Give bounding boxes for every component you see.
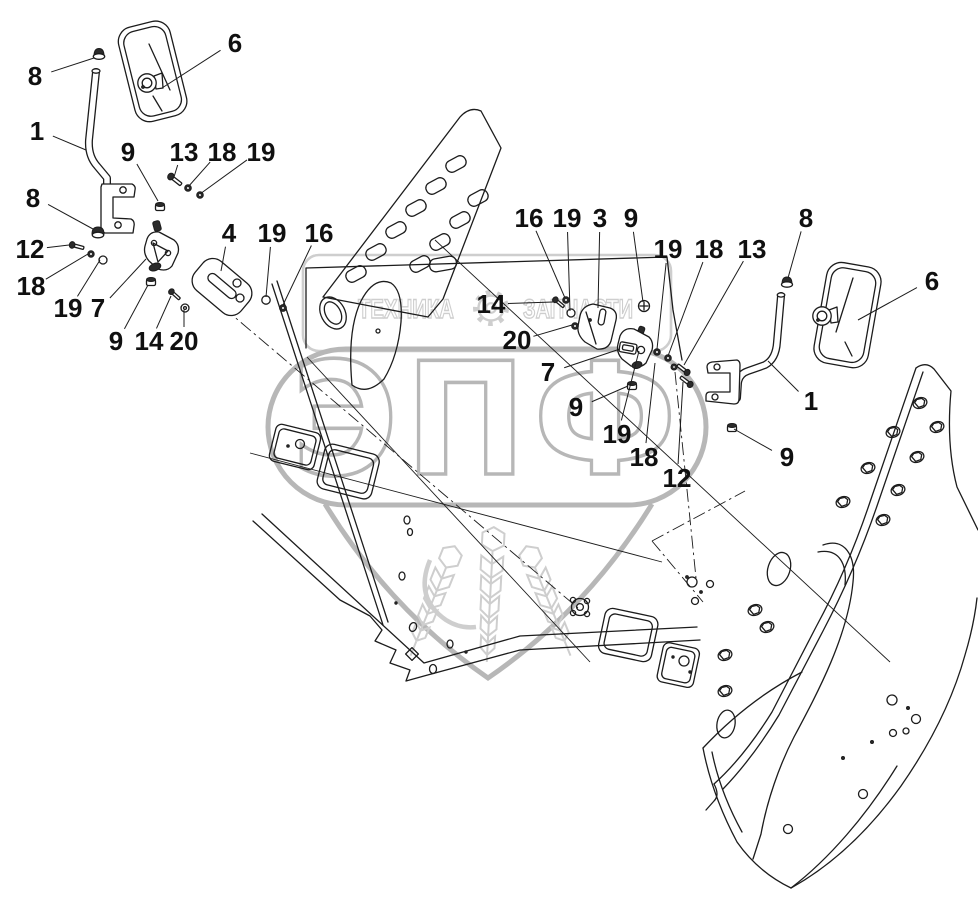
- callout-16: 16: [515, 203, 544, 233]
- callout-19: 19: [603, 419, 632, 449]
- washer-19b: [99, 256, 107, 264]
- callout-18: 18: [17, 271, 46, 301]
- callout-19: 19: [553, 203, 582, 233]
- nut-9: [156, 203, 165, 211]
- callout-1: 1: [804, 386, 818, 416]
- leader-line-1: [53, 136, 86, 150]
- washer-20: [181, 304, 189, 312]
- leader-line-8: [51, 58, 94, 72]
- clamp-bracket-7-left: [145, 220, 179, 272]
- mirror-ball-joint-right: [813, 307, 838, 325]
- callout-9: 9: [109, 326, 123, 356]
- nut-9c-right: [628, 382, 637, 390]
- washer-18b: [88, 251, 94, 257]
- slotted-vent-panel: [323, 109, 501, 317]
- leader-line-9: [734, 429, 772, 450]
- callout-4: 4: [222, 218, 237, 248]
- leader-line-19: [77, 260, 100, 296]
- washer-16-right: [563, 297, 570, 304]
- leader-line-8: [788, 231, 801, 278]
- cap-nut-8-top: [93, 49, 104, 60]
- callout-3: 3: [593, 203, 607, 233]
- mirror-ball-joint-left: [138, 73, 163, 92]
- cap-nut-8-right: [782, 277, 793, 287]
- wheat-ears-emblem: [401, 527, 579, 663]
- callout-18: 18: [630, 442, 659, 472]
- exploded-view-drawing: ЭПФ ТЕХНИКА ЗАПЧАСТИ: [0, 0, 978, 907]
- washer-19c: [262, 296, 270, 304]
- leader-line-6: [858, 288, 917, 320]
- callout-9: 9: [624, 203, 638, 233]
- callout-12: 12: [16, 234, 45, 264]
- callout-7: 7: [541, 357, 555, 387]
- callout-9: 9: [780, 442, 794, 472]
- callout-18: 18: [208, 137, 237, 167]
- mirror-head-left: [115, 18, 190, 125]
- watermark-brand-left: ТЕХНИКА: [358, 294, 454, 324]
- bolt-12: [69, 241, 85, 251]
- leader-line-19: [266, 247, 270, 297]
- leader-line-1: [768, 361, 799, 391]
- callout-8: 8: [28, 61, 42, 91]
- leader-line-12: [47, 245, 69, 248]
- callout-9: 9: [569, 392, 583, 422]
- leader-line-16: [283, 246, 311, 305]
- frame-bolts: [717, 396, 946, 698]
- callout-9: 9: [121, 137, 135, 167]
- callout-20: 20: [170, 326, 199, 356]
- callout-19: 19: [247, 137, 276, 167]
- leader-line-9: [137, 164, 158, 201]
- left-mirror-assembly: [69, 18, 287, 321]
- cap-nut-9-right: [728, 424, 737, 432]
- callout-13: 13: [738, 234, 767, 264]
- leader-line-9: [633, 232, 643, 302]
- cap-nut-8-bottom: [92, 227, 104, 238]
- flower-nut-9-right: [639, 301, 650, 312]
- callout-8: 8: [26, 183, 40, 213]
- callout-13: 13: [170, 137, 199, 167]
- callout-6: 6: [925, 266, 939, 296]
- leader-line-16: [536, 231, 565, 298]
- callout-18: 18: [695, 234, 724, 264]
- washer-16: [280, 305, 287, 312]
- leader-line-14: [156, 296, 171, 328]
- arm-bracket-right: [706, 360, 740, 404]
- leader-line-8: [48, 204, 93, 229]
- callout-12: 12: [663, 463, 692, 493]
- nut-9b: [147, 278, 156, 286]
- callout-19: 19: [654, 234, 683, 264]
- washer-18: [185, 185, 192, 192]
- callout-7: 7: [91, 293, 105, 323]
- washer-19-right: [567, 309, 575, 317]
- callout-8: 8: [799, 203, 813, 233]
- leader-line-7: [110, 259, 146, 298]
- mirror-glass-reflection: [836, 278, 853, 356]
- mirror-arm-right: [706, 293, 785, 404]
- leader-line-13: [684, 261, 743, 365]
- callout-1: 1: [30, 116, 44, 146]
- callout-19: 19: [54, 293, 83, 323]
- callout-19: 19: [258, 218, 287, 248]
- arm-bracket-left: [101, 184, 135, 233]
- leader-line-18: [46, 254, 88, 279]
- callout-14: 14: [135, 326, 164, 356]
- bottom-curved-plate: [703, 598, 977, 888]
- callout-6: 6: [228, 28, 242, 58]
- callout-20: 20: [503, 325, 532, 355]
- leader-line-9: [124, 285, 148, 329]
- callout-14: 14: [477, 289, 506, 319]
- washer-20-right: [572, 323, 579, 330]
- parts-diagram-canvas: ЭПФ ТЕХНИКА ЗАПЧАСТИ: [0, 0, 978, 907]
- callout-16: 16: [305, 218, 334, 248]
